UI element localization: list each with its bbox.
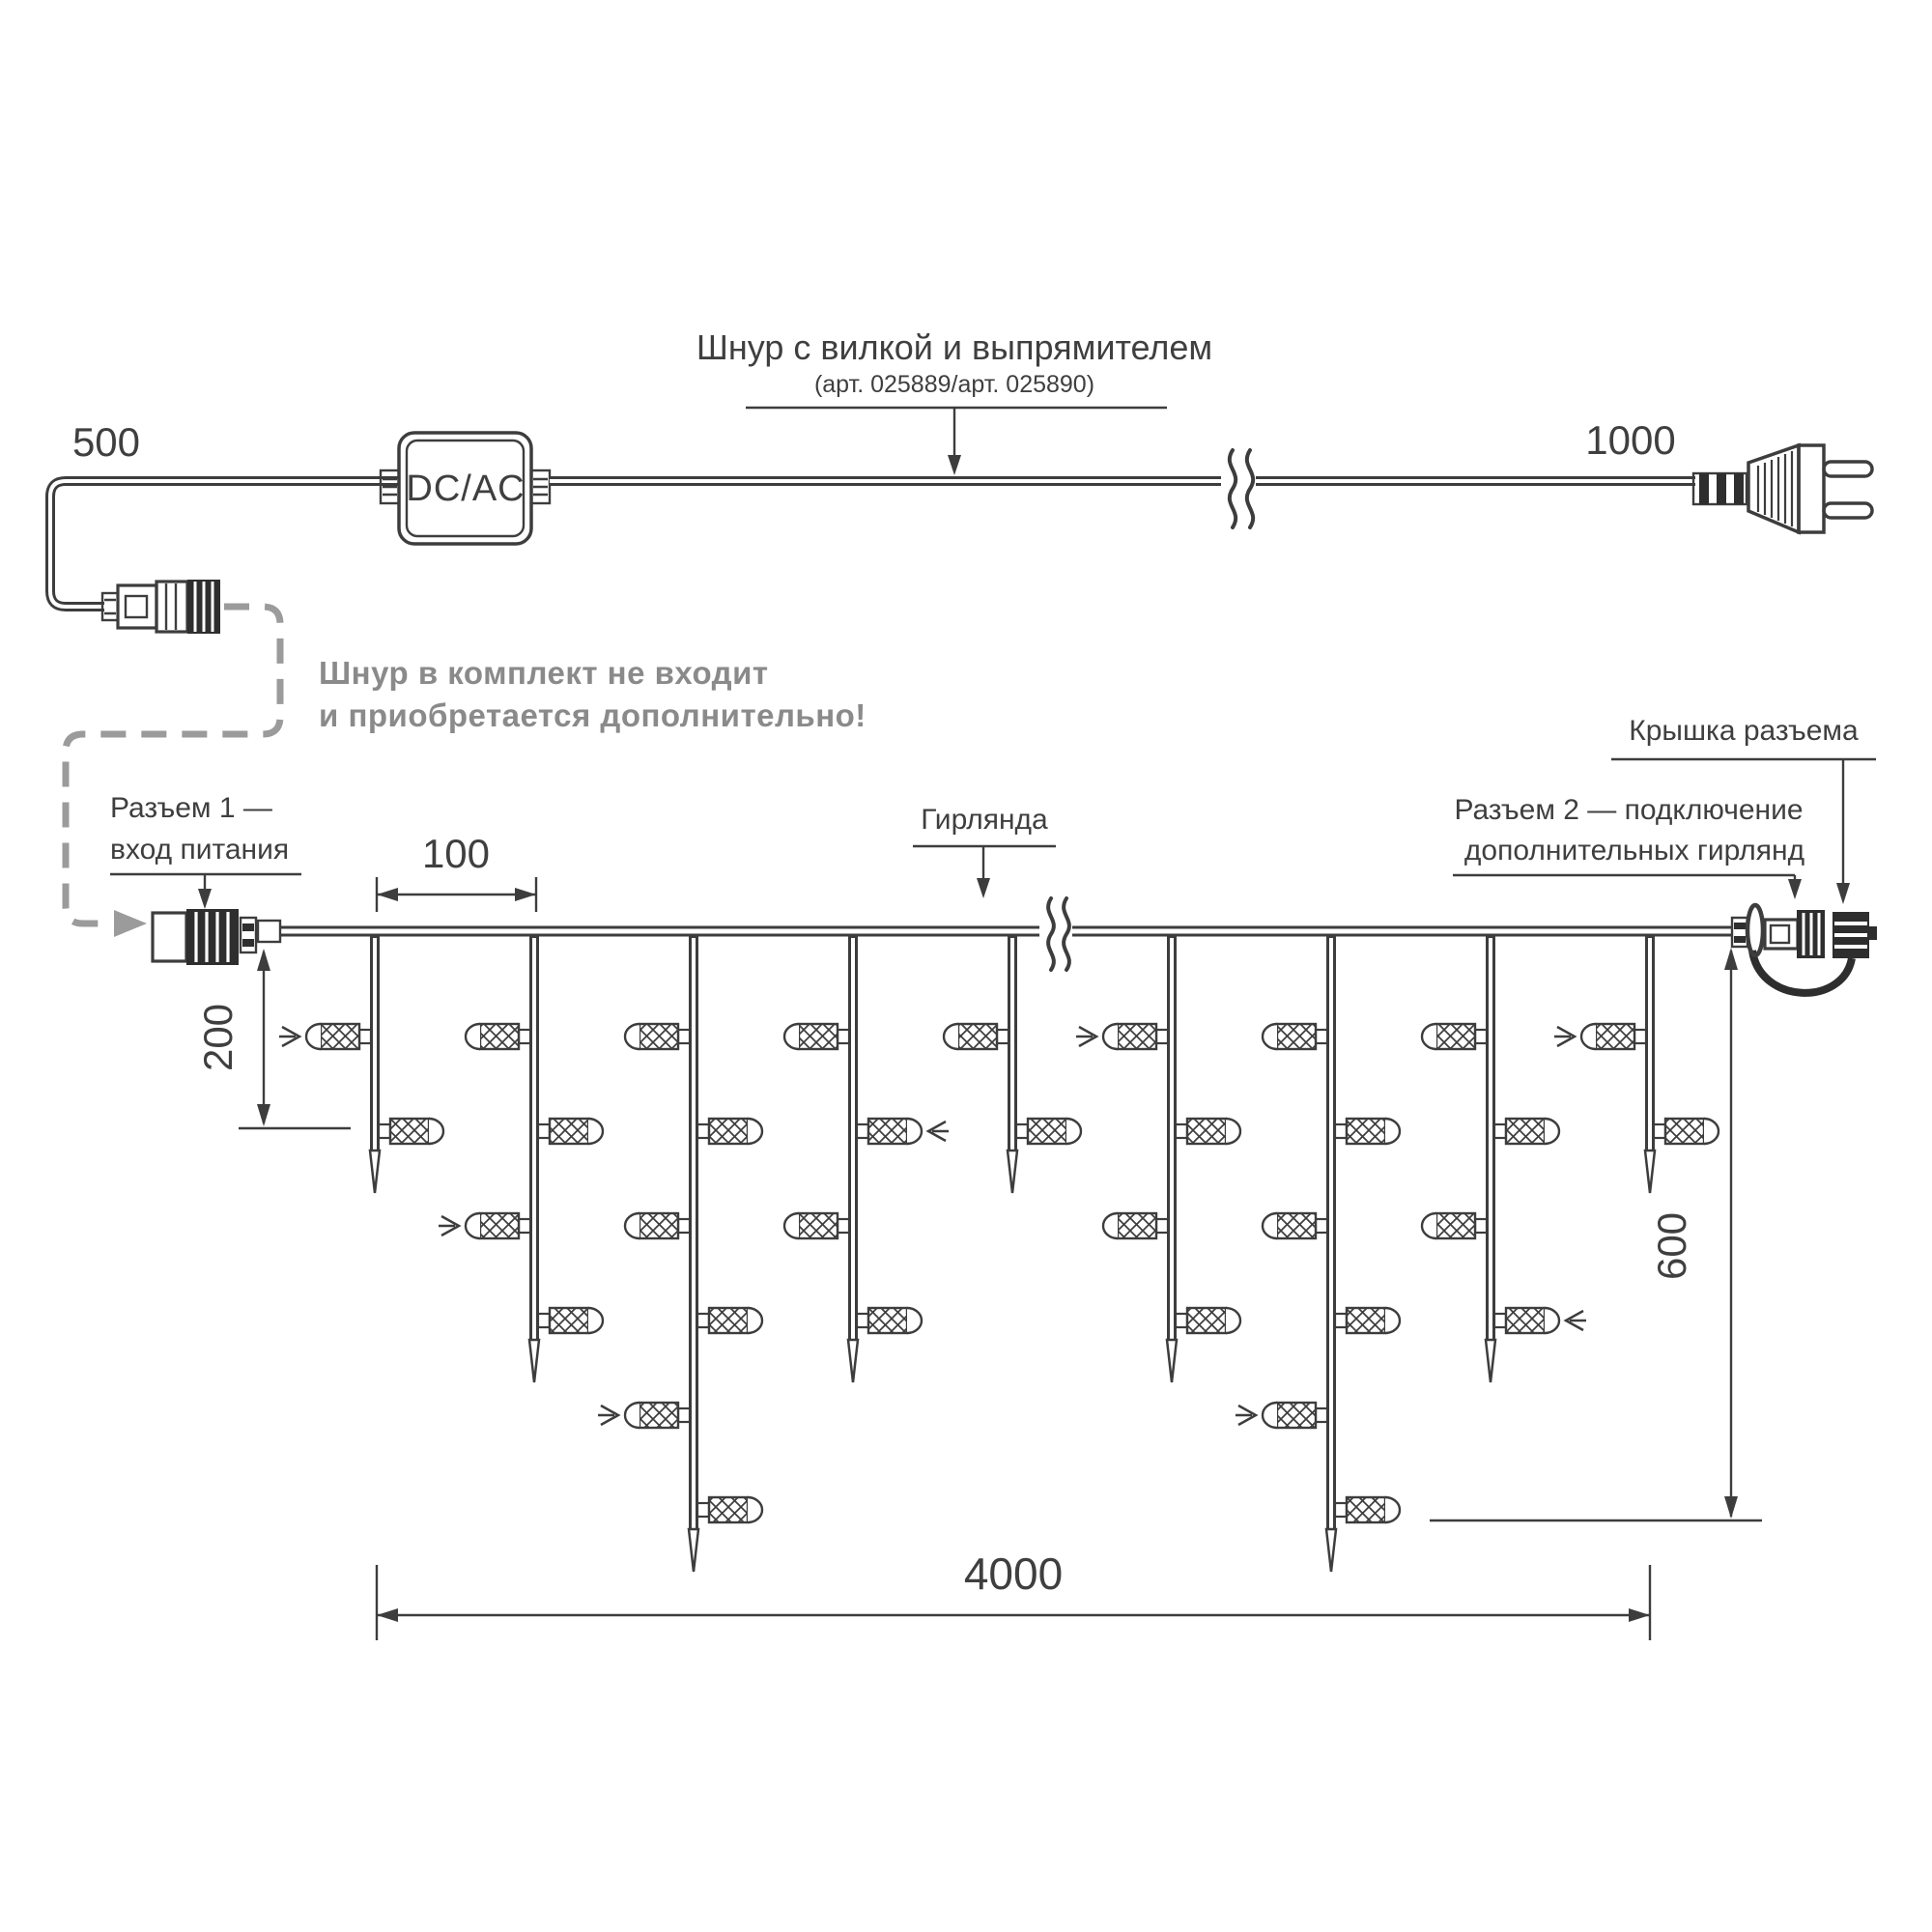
led-bulb (1263, 1213, 1327, 1238)
connector2-label-line2: дополнительных гирлянд (1464, 835, 1804, 867)
garland-connector-1 (153, 909, 280, 965)
bulb-cap (907, 1119, 922, 1144)
bulb-cap (1545, 1119, 1559, 1144)
led-bulb (1422, 1024, 1487, 1049)
icicle-drop (1422, 936, 1586, 1382)
garland-label-text: Гирлянда (921, 804, 1048, 836)
power-cord-500 (50, 481, 399, 607)
bulb-cap (1103, 1213, 1118, 1238)
led-bulb (1176, 1308, 1240, 1333)
note-line2: и приобретается дополнительно! (319, 697, 867, 733)
drop-tip (1008, 1151, 1017, 1193)
drop-tip (689, 1529, 698, 1572)
cap-label-text: Крышка разъема (1629, 715, 1859, 747)
led-bulb (466, 1024, 530, 1049)
bulb-cap (306, 1024, 321, 1049)
dim-1000-value: 1000 (1585, 417, 1675, 463)
led-bulb (279, 1024, 371, 1049)
flash-arrow-icon (279, 1027, 299, 1046)
dashed-connection-path (66, 607, 280, 937)
connector1-label-line2: вход питания (110, 834, 289, 866)
flash-arrow-icon (1554, 1027, 1575, 1046)
dim-4000-value: 4000 (964, 1548, 1063, 1599)
flash-arrow-icon (1566, 1311, 1586, 1330)
led-bulb (625, 1213, 690, 1238)
led-bulb (697, 1497, 762, 1522)
drop-tip (529, 1340, 539, 1382)
bulb-cap (1422, 1024, 1436, 1049)
bulb-cap (1385, 1119, 1400, 1144)
bulb-cap (1385, 1308, 1400, 1333)
connector2-label: Разъем 2 — подключение дополнительных ги… (1453, 794, 1804, 899)
garland-connector-2 (1732, 905, 1877, 993)
tether-ring (1747, 905, 1763, 955)
icicle-drop (279, 936, 443, 1193)
leader-arrow-icon (1836, 883, 1850, 904)
bulb-cap (1226, 1308, 1240, 1333)
connector2-label-line1: Разъем 2 — подключение (1454, 794, 1803, 826)
bulb-cap (429, 1119, 443, 1144)
leader-arrow-icon (1788, 879, 1802, 899)
led-bulb (1654, 1119, 1719, 1144)
led-bulb (1335, 1497, 1400, 1522)
power-plug (1693, 445, 1872, 532)
led-bulb (1016, 1119, 1081, 1144)
cord-subtitle: (арт. 025889/арт. 025890) (814, 371, 1094, 398)
diagram-canvas: DC/AC Шнур с вилкой и выпрямителем (арт.… (0, 0, 1932, 1932)
bulb-cap (784, 1213, 799, 1238)
led-bulb (1176, 1119, 1240, 1144)
led-bulb (538, 1119, 603, 1144)
plug-prong (1824, 462, 1872, 476)
connector1-label-line1: Разъем 1 — (110, 792, 272, 824)
led-bulb (857, 1119, 949, 1144)
bulb-cap (466, 1213, 480, 1238)
bulb-cap (748, 1497, 762, 1522)
led-bulb (1103, 1213, 1168, 1238)
drop-tip (1486, 1340, 1495, 1382)
bulb-cap (1581, 1024, 1596, 1049)
bulb-cap (466, 1024, 480, 1049)
leader-arrow-icon (948, 455, 961, 475)
note-line1: Шнур в комплект не входит (319, 655, 769, 691)
cord-title: Шнур с вилкой и выпрямителем (696, 327, 1212, 367)
led-bulb (1494, 1119, 1559, 1144)
drop-tip (370, 1151, 380, 1193)
connector1-label: Разъем 1 — вход питания (110, 792, 301, 909)
bulb-cap (625, 1213, 639, 1238)
icicle-drops-layer (279, 936, 1719, 1572)
dashed-arrow-icon (114, 910, 147, 937)
dim-600-value: 600 (1649, 1212, 1694, 1280)
garland-wiring-diagram: DC/AC Шнур с вилкой и выпрямителем (арт.… (0, 0, 1932, 1932)
led-bulb (1076, 1024, 1168, 1049)
garland-break-icon (1041, 898, 1070, 970)
bulb-cap (1263, 1403, 1277, 1428)
bulb-cap (1066, 1119, 1081, 1144)
plug-prong (1824, 503, 1872, 518)
led-bulb (1335, 1308, 1400, 1333)
drop-tip (1326, 1529, 1336, 1572)
flash-arrow-icon (1236, 1406, 1256, 1425)
dcac-label: DC/AC (406, 469, 525, 509)
icicle-drop (1554, 936, 1719, 1193)
led-bulb (944, 1024, 1009, 1049)
led-bulb (1494, 1308, 1586, 1333)
dim-500-value: 500 (72, 419, 140, 465)
dim-4000: 4000 (377, 1548, 1650, 1640)
led-bulb (857, 1308, 922, 1333)
bulb-cap (1422, 1213, 1436, 1238)
dim-200-value: 200 (195, 1004, 241, 1071)
led-bulb (1236, 1403, 1327, 1428)
led-bulb (784, 1213, 849, 1238)
drop-tip (848, 1340, 858, 1382)
led-bulb (1335, 1119, 1400, 1144)
leader-arrow-icon (977, 878, 990, 898)
icicle-drop (1076, 936, 1240, 1382)
led-bulb (697, 1308, 762, 1333)
bulb-cap (944, 1024, 958, 1049)
bulb-cap (625, 1024, 639, 1049)
bulb-cap (588, 1119, 603, 1144)
dcac-converter-box: DC/AC (381, 433, 550, 544)
power-cord-connector (102, 580, 220, 634)
bulb-cap (748, 1308, 762, 1333)
drop-tip (1167, 1340, 1177, 1382)
icicle-drop (1236, 936, 1400, 1572)
bulb-cap (1545, 1308, 1559, 1333)
icicle-drop (439, 936, 603, 1382)
bulb-cap (748, 1119, 762, 1144)
dim-100: 100 (377, 831, 536, 912)
bulb-cap (1103, 1024, 1118, 1049)
icicle-drop (944, 936, 1081, 1193)
connector-cap (1833, 912, 1877, 958)
bulb-cap (625, 1403, 639, 1428)
bulb-cap (588, 1308, 603, 1333)
led-bulb (784, 1024, 849, 1049)
led-bulb (625, 1024, 690, 1049)
led-bulb (1422, 1213, 1487, 1238)
bulb-cap (1263, 1213, 1277, 1238)
flash-arrow-icon (1076, 1027, 1096, 1046)
flash-arrow-icon (928, 1122, 949, 1141)
flash-arrow-icon (439, 1216, 459, 1236)
led-bulb (697, 1119, 762, 1144)
garland-label: Гирлянда (913, 804, 1056, 898)
drop-tip (1645, 1151, 1655, 1193)
led-bulb (379, 1119, 443, 1144)
led-bulb (598, 1403, 690, 1428)
bulb-cap (1226, 1119, 1240, 1144)
led-bulb (538, 1308, 603, 1333)
dim-100-value: 100 (422, 831, 490, 876)
flash-arrow-icon (598, 1406, 618, 1425)
bulb-cap (1704, 1119, 1719, 1144)
leader-arrow-icon (198, 889, 212, 909)
bulb-cap (907, 1308, 922, 1333)
led-bulb (1263, 1024, 1327, 1049)
icicle-drop (598, 936, 762, 1572)
bulb-cap (1385, 1497, 1400, 1522)
bulb-cap (784, 1024, 799, 1049)
bulb-cap (1263, 1024, 1277, 1049)
led-bulb (439, 1213, 530, 1238)
icicle-drop (784, 936, 949, 1382)
led-bulb (1554, 1024, 1646, 1049)
power-cord-1000 (550, 450, 1695, 527)
cord-title-leader (746, 408, 1167, 475)
